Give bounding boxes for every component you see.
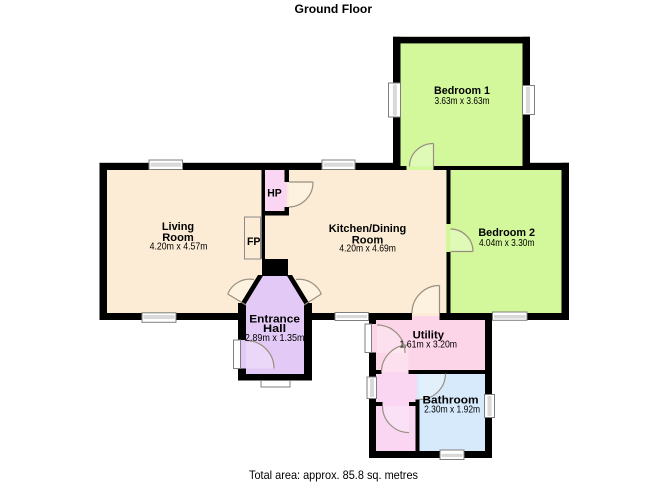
svg-text:Ground Floor: Ground Floor [295,2,373,16]
svg-text:3.63m x 3.63m: 3.63m x 3.63m [435,96,490,107]
svg-text:2.30m x 1.92m: 2.30m x 1.92m [424,405,480,416]
svg-text:Kitchen/Dining: Kitchen/Dining [329,223,407,235]
svg-text:4.20m x 4.69m: 4.20m x 4.69m [339,244,396,255]
svg-text:4.20m x 4.57m: 4.20m x 4.57m [150,242,208,253]
svg-text:4.04m x 3.30m: 4.04m x 3.30m [479,238,535,249]
svg-text:1.61m x 3.20m: 1.61m x 3.20m [400,340,458,351]
svg-text:2.89m x 1.35m: 2.89m x 1.35m [245,333,305,344]
svg-text:FP: FP [247,236,261,248]
svg-text:Total area: approx. 85.8 sq. m: Total area: approx. 85.8 sq. metres [249,468,418,482]
svg-text:HP: HP [267,188,282,200]
